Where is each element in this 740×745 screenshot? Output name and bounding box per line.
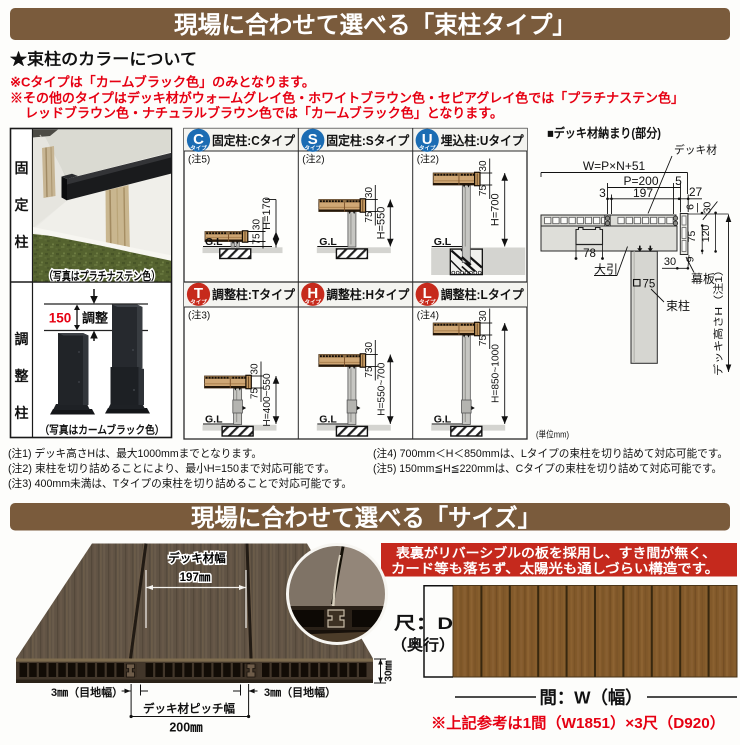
svg-text:大引: 大引 [594,263,618,277]
svg-text:（奥行）: （奥行） [391,636,455,654]
svg-text:9: 9 [684,256,696,262]
svg-text:30㎜: 30㎜ [384,660,395,681]
svg-text:固: 固 [15,160,29,176]
svg-text:幕板: 幕板 [691,272,715,286]
svg-text:※Cタイプは「カームブラック色」のみとなります。: ※Cタイプは「カームブラック色」のみとなります。 [10,75,315,90]
svg-text:※その他のタイプはデッキ材がウォームグレイ色・ホワイトブラウ: ※その他のタイプはデッキ材がウォームグレイ色・ホワイトブラウン色・セピアグレイ色… [10,91,684,106]
svg-text:尺：D: 尺：D [394,614,453,633]
svg-text:75: 75 [250,388,261,400]
svg-text:H=850~1000: H=850~1000 [491,344,502,403]
svg-text:固定柱:Sタイプ: 固定柱:Sタイプ [326,133,409,148]
svg-text:(注3) 400mm未満は、Tタイプの束柱を切り詰めることで: (注3) 400mm未満は、Tタイプの束柱を切り詰めることで対応可能です。 [8,476,352,490]
svg-text:調: 調 [15,331,29,347]
svg-text:H=550~700: H=550~700 [376,362,387,416]
svg-text:束柱: 束柱 [666,298,690,313]
svg-text:H=170: H=170 [261,197,273,230]
svg-text:カード等も落ちず、太陽光も通しづらい構造です。: カード等も落ちず、太陽光も通しづらい構造です。 [391,561,719,576]
svg-text:W=P×N+51: W=P×N+51 [583,159,646,173]
svg-text:調整: 調整 [82,311,109,326]
svg-text:30: 30 [364,342,375,354]
svg-text:150: 150 [49,311,72,326]
svg-text:調整柱:Hタイプ: 調整柱:Hタイプ [326,287,409,302]
svg-text:30: 30 [250,363,261,375]
svg-text:3㎜（目地幅）: 3㎜（目地幅） [51,685,123,699]
svg-text:現場に合わせて選べる「サイズ」: 現場に合わせて選べる「サイズ」 [191,504,541,532]
svg-text:30: 30 [364,187,375,199]
svg-text:（写真はカームブラック色）: （写真はカームブラック色） [40,423,165,437]
svg-text:固定柱:Cタイプ: 固定柱:Cタイプ [212,133,295,148]
svg-text:★束柱のカラーについて: ★束柱のカラーについて [10,50,197,69]
svg-text:30: 30 [664,256,676,268]
svg-text:75: 75 [252,233,263,245]
svg-text:H=700: H=700 [490,193,502,226]
svg-text:タイプ: タイプ [190,298,207,306]
svg-text:75: 75 [643,279,656,291]
svg-text:(注2): (注2) [302,153,324,166]
svg-text:30: 30 [702,202,714,214]
svg-text:タイプ: タイプ [419,144,436,152]
svg-text:柱: 柱 [15,234,29,250]
svg-text:デッキ材ピッチ幅: デッキ材ピッチ幅 [143,702,235,716]
svg-text:※上記参考は1間（W1851）×3尺（D920）: ※上記参考は1間（W1851）×3尺（D920） [431,714,725,732]
svg-text:レッドブラウン色・ナチュラルブラウン色では「カームブラック色: レッドブラウン色・ナチュラルブラウン色では「カームブラック色」となります。 [25,106,503,121]
svg-text:デッキ材: デッキ材 [674,143,717,157]
svg-text:(注4) 700mm＜H＜850mmは、Lタイプの束柱を切り: (注4) 700mm＜H＜850mmは、Lタイプの束柱を切り詰めて対応可能です。 [373,446,728,460]
svg-text:タイプ: タイプ [419,298,436,306]
svg-text:調整柱:Lタイプ: 調整柱:Lタイプ [441,287,524,302]
svg-text:表裏がリバーシブルの板を採用し、すき間が無く、: 表裏がリバーシブルの板を採用し、すき間が無く、 [395,546,716,561]
svg-text:G.L: G.L [319,236,337,248]
svg-text:整: 整 [14,368,30,384]
svg-text:埋込柱:Uタイプ: 埋込柱:Uタイプ [441,133,524,148]
svg-text:200㎜: 200㎜ [169,721,203,735]
svg-text:デッキ高さH（注1）: デッキ高さH（注1） [712,264,725,376]
svg-text:30: 30 [478,160,489,172]
svg-text:定: 定 [15,197,29,213]
svg-text:間：W（幅）: 間：W（幅） [540,688,643,708]
svg-text:30: 30 [478,310,489,322]
svg-text:78: 78 [583,248,596,260]
svg-text:G.L: G.L [434,414,452,426]
svg-text:27: 27 [689,185,703,199]
svg-text:タイプ: タイプ [305,144,322,152]
svg-text:(注5) 150mm≦H≦220mmは、Cタイプの束柱を切り: (注5) 150mm≦H≦220mmは、Cタイプの束柱を切り詰めて対応可能です。 [373,461,722,475]
svg-text:197: 197 [633,186,653,200]
svg-text:(注4): (注4) [417,309,439,322]
svg-text:75: 75 [478,335,489,347]
svg-text:(注5): (注5) [188,153,210,166]
svg-text:3: 3 [599,186,606,200]
svg-text:6: 6 [685,204,697,210]
svg-text:G.L: G.L [319,414,337,426]
svg-text:現場に合わせて選べる「束柱タイプ」: 現場に合わせて選べる「束柱タイプ」 [174,11,576,39]
svg-text:G.L: G.L [434,236,452,248]
svg-text:3㎜（目地幅）: 3㎜（目地幅） [264,685,336,699]
svg-text:■デッキ材納まり(部分): ■デッキ材納まり(部分) [547,126,661,141]
svg-text:75: 75 [686,231,698,243]
svg-text:タイプ: タイプ [305,298,322,306]
svg-text:120: 120 [700,225,712,243]
svg-text:柱: 柱 [15,405,29,421]
svg-text:(注2): (注2) [417,153,439,166]
svg-text:197㎜: 197㎜ [180,572,211,584]
svg-text:（写真はプラチナステン色）: （写真はプラチナステン色） [44,269,160,283]
svg-text:(注1) デッキ高さHは、最大1000mmまでとなります。: (注1) デッキ高さHは、最大1000mmまでとなります。 [8,446,262,460]
svg-text:調整柱:Tタイプ: 調整柱:Tタイプ [212,287,295,302]
svg-text:5: 5 [675,174,682,188]
svg-text:(注2) 束柱を切り詰めることにより、最小H=150まで対応: (注2) 束柱を切り詰めることにより、最小H=150まで対応可能です。 [8,461,335,475]
svg-text:H=550: H=550 [375,207,387,240]
svg-text:G.L: G.L [205,414,223,426]
svg-text:75: 75 [478,185,489,197]
svg-text:(注3): (注3) [188,309,210,322]
svg-text:H=400~550: H=400~550 [262,373,273,427]
svg-text:G.L: G.L [205,236,223,248]
svg-text:タイプ: タイプ [190,144,207,152]
svg-text:(単位mm): (単位mm) [536,429,569,440]
svg-text:デッキ材幅: デッキ材幅 [168,551,226,565]
svg-text:75: 75 [364,211,375,223]
svg-text:75: 75 [364,366,375,378]
